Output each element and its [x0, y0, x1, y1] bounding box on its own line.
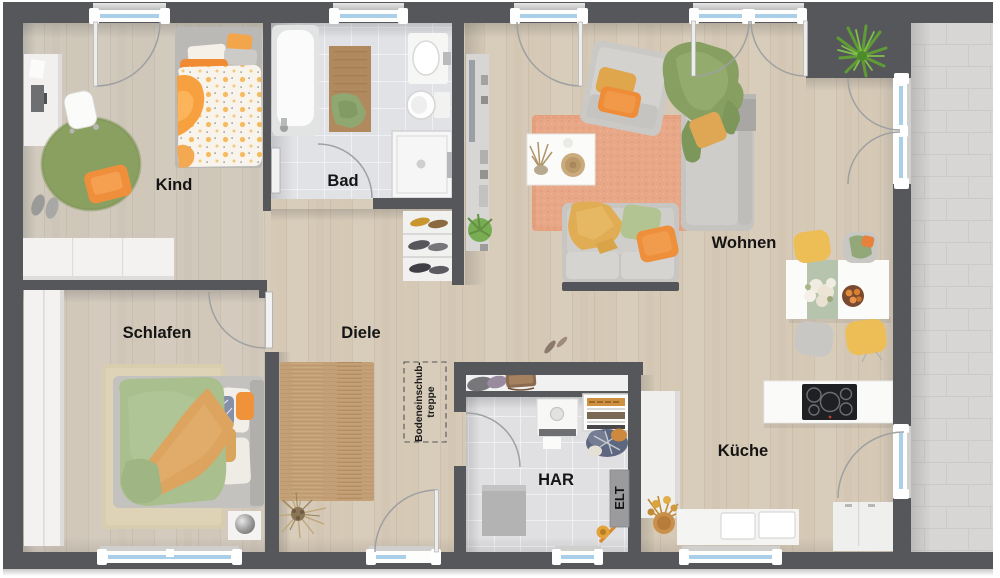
svg-text:Bodeneinschub-: Bodeneinschub- — [414, 362, 425, 442]
svg-text:Diele: Diele — [341, 324, 380, 342]
svg-text:HAR: HAR — [538, 471, 574, 489]
svg-text:Küche: Küche — [718, 442, 768, 460]
svg-text:Kind: Kind — [156, 176, 193, 194]
svg-text:Schlafen: Schlafen — [123, 324, 192, 342]
svg-text:treppe: treppe — [426, 386, 437, 417]
svg-text:Bad: Bad — [327, 172, 358, 190]
svg-text:Wohnen: Wohnen — [712, 234, 777, 252]
svg-text:ELT: ELT — [612, 486, 627, 510]
